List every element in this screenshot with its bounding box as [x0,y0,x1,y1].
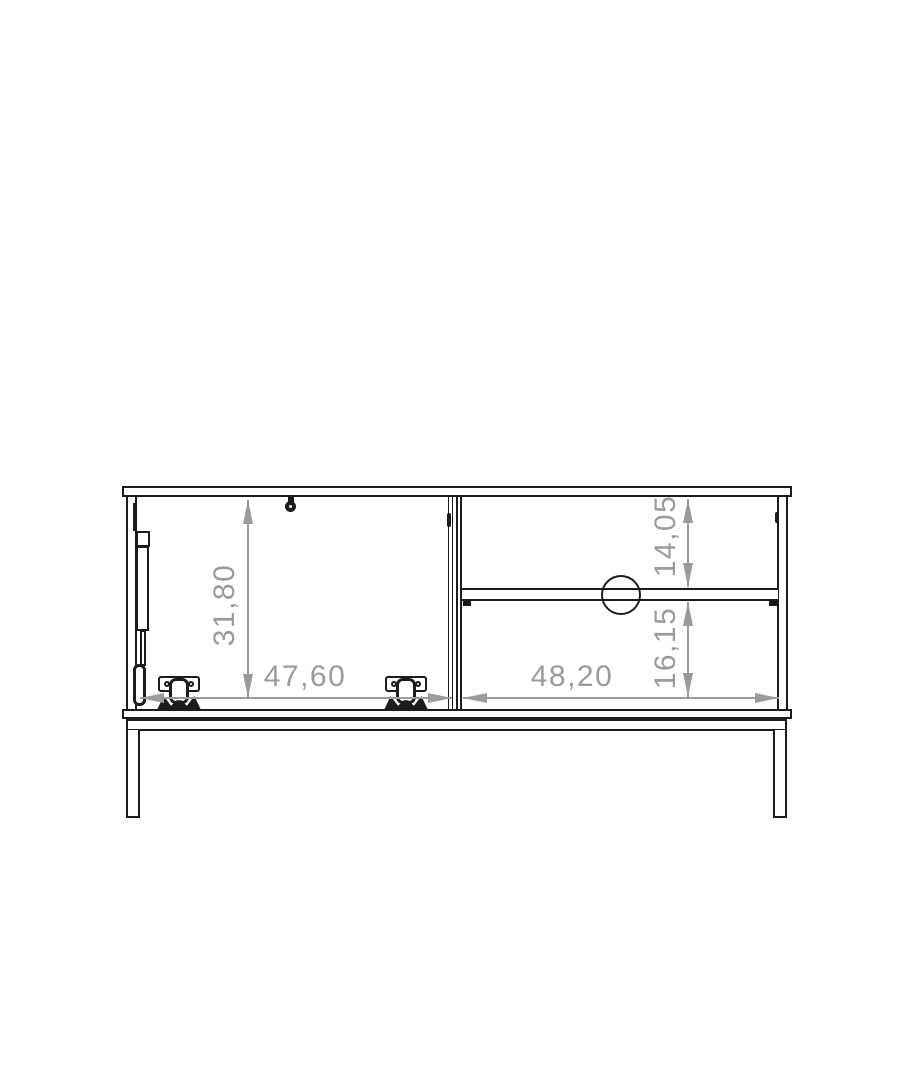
technical-drawing-canvas: 31,80 47,60 48,20 14,05 16,15 [0,0,913,1080]
dim-label-right-bottom: 16,15 [651,583,681,713]
base-leg-right [773,730,787,818]
cable-hole [601,575,641,615]
dim-arrow-down-icon [683,673,693,697]
flap-door-edge [448,497,453,709]
dim-arrow-right-icon [428,693,452,703]
dim-arrow-up-icon [683,602,693,626]
base-leg-left [126,730,140,818]
hinge-right-cup [396,678,416,704]
dim-left-width-line [140,697,452,699]
dim-arrow-right-icon [755,693,779,703]
bottom-panel [122,709,792,719]
dim-arrow-up-icon [683,499,693,523]
dim-arrow-left-icon [140,693,164,703]
dim-label-right-width: 48,20 [512,662,632,692]
base-frame-rail [126,719,787,731]
right-side-panel [777,497,788,709]
gas-strut-bracket [136,531,150,547]
dim-right-width-line [463,697,779,699]
shelf-support-left [463,601,471,606]
door-catch-pin [447,513,451,527]
dim-label-right-top: 14,05 [651,471,681,601]
gas-strut-top-mount [133,503,137,531]
dim-label-left-width: 47,60 [245,662,365,692]
right-wall-catch-pin [775,512,779,523]
dim-arrow-down-icon [683,563,693,587]
top-panel [122,486,792,497]
gas-strut-rod [140,630,146,666]
hinge-left-cup [169,678,189,704]
dim-label-left-height: 31,80 [210,540,240,670]
gas-strut-cylinder [136,546,149,631]
dim-arrow-left-icon [463,693,487,703]
shelf-support-right [769,601,777,606]
wall-mount-fitting-knob [285,501,296,512]
dim-arrow-up-icon [243,500,253,524]
center-divider [456,497,462,709]
